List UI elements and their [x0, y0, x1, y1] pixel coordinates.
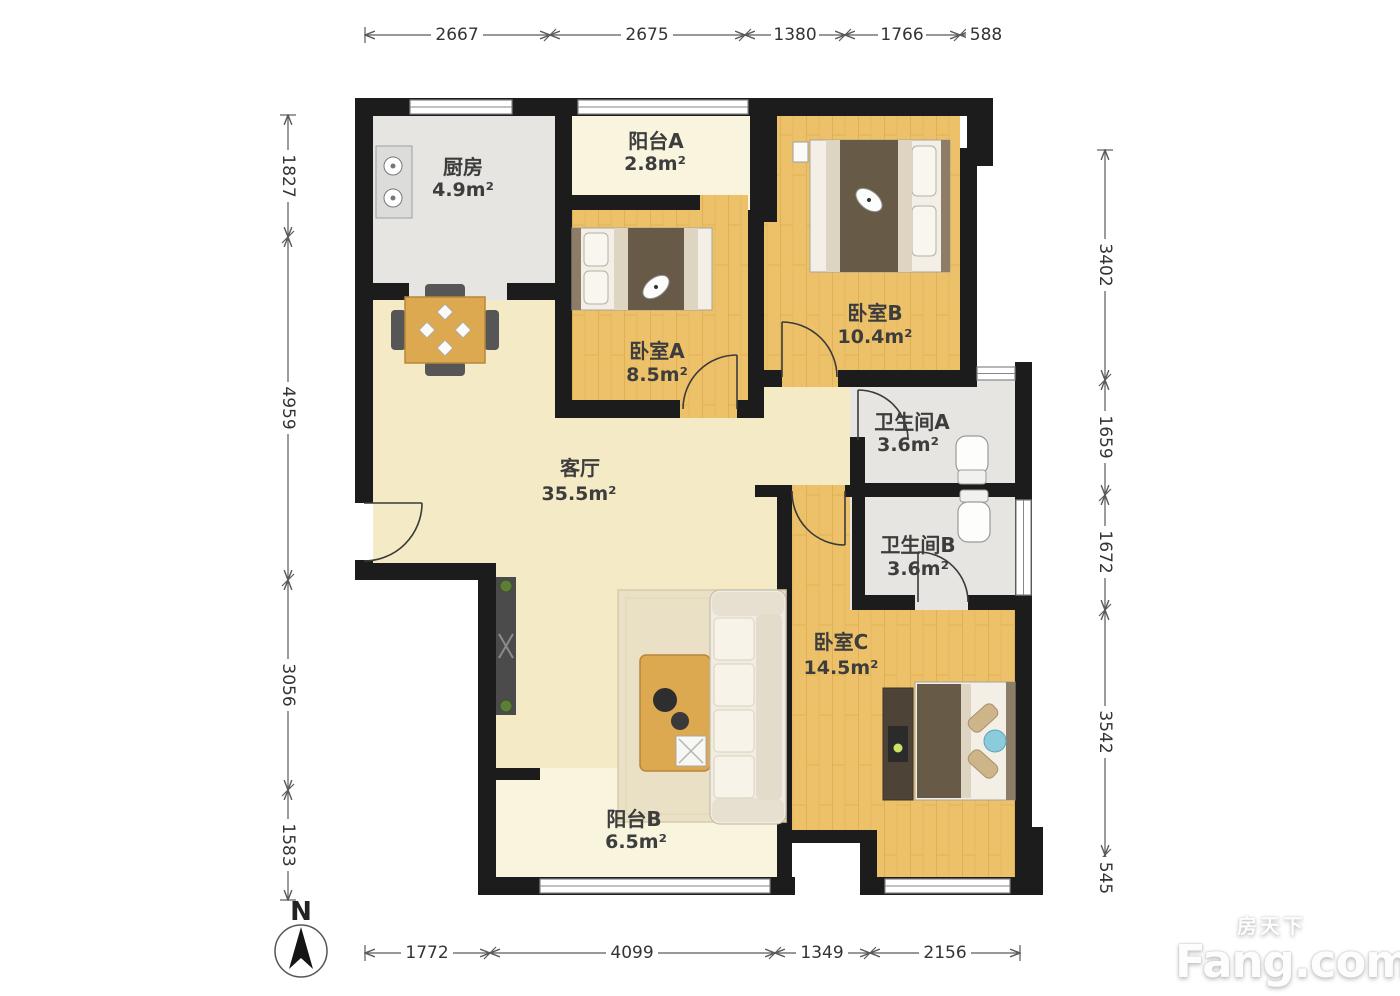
- sofa: [710, 590, 786, 824]
- toilet-b-icon: [958, 490, 990, 542]
- balcony-b-label: 阳台B: [606, 807, 661, 831]
- dim-left-2: 4959: [278, 386, 298, 429]
- tv-cabinet: [496, 577, 516, 715]
- dim-left-4: 1583: [278, 823, 298, 866]
- dining-set: [391, 284, 499, 376]
- bathroom-a-label: 卫生间A: [874, 410, 950, 434]
- dim-left-1: 1827: [278, 154, 298, 197]
- dim-right-3: 1672: [1095, 530, 1115, 573]
- bed-c: [883, 682, 1015, 800]
- bedroom-c-label: 卧室C: [814, 630, 869, 654]
- dimension-right: 3402 1659 1672 3542 545: [1095, 150, 1115, 899]
- dim-bottom-1: 1772: [405, 943, 448, 963]
- bathroom-b-area: 3.6m²: [887, 558, 949, 580]
- bedroom-a-area: 8.5m²: [626, 364, 688, 386]
- balcony-a-label: 阳台A: [628, 129, 684, 153]
- floor-plan-svg: 厨房 4.9m² 阳台A 2.8m² 卧室A 8.5m² 卧室B 10.4m² …: [0, 0, 1400, 996]
- stove-icon: [376, 146, 412, 218]
- living-room-area: 35.5m²: [542, 483, 617, 505]
- dim-right-1: 3402: [1095, 243, 1115, 286]
- balcony-b-area: 6.5m²: [605, 831, 667, 853]
- bathroom-a-area: 3.6m²: [877, 434, 939, 456]
- dim-top-1: 2667: [435, 25, 478, 45]
- kitchen-label: 厨房: [443, 155, 483, 179]
- dim-bottom-2: 4099: [610, 943, 653, 963]
- bedroom-b-label: 卧室B: [847, 301, 902, 325]
- compass-needle-icon: [289, 927, 313, 969]
- dim-top-4: 1766: [880, 25, 923, 45]
- bathroom-b-window: [1016, 500, 1031, 595]
- living-room-label: 客厅: [559, 456, 600, 480]
- dim-top-5: 588: [970, 25, 1002, 45]
- dim-left-3: 3056: [278, 663, 298, 706]
- dimension-left: 1827 4959 3056 1583: [278, 115, 298, 900]
- coffee-table: [640, 655, 710, 771]
- dim-right-5: 545: [1095, 862, 1115, 894]
- dim-right-4: 3542: [1095, 710, 1115, 753]
- bedroom-b-area: 10.4m²: [838, 326, 913, 348]
- outside-patch-notch: [792, 843, 860, 895]
- compass: N: [275, 897, 327, 977]
- bathroom-a-window: [977, 367, 1015, 380]
- kitchen-area: 4.9m²: [432, 179, 494, 201]
- bedroom-c-area: 14.5m²: [804, 657, 879, 679]
- bed-a: [572, 228, 712, 310]
- kitchen-window: [410, 100, 512, 114]
- toilet-a-icon: [956, 436, 988, 484]
- dim-bottom-3: 1349: [800, 943, 843, 963]
- dim-top-3: 1380: [773, 25, 816, 45]
- dimension-bottom: 1772 4099 1349 2156: [365, 943, 1020, 963]
- dim-right-2: 1659: [1095, 415, 1115, 458]
- bed-b: [793, 140, 950, 272]
- dim-bottom-4: 2156: [923, 943, 966, 963]
- balcony-a-area: 2.8m²: [624, 153, 686, 175]
- bedroom-c-window: [885, 879, 1010, 893]
- dimension-top: 2667 2675 1380 1766 588: [365, 25, 1006, 45]
- compass-north-label: N: [290, 897, 312, 927]
- outside-patch-left: [355, 580, 478, 900]
- balcony-a-window: [578, 100, 748, 114]
- balcony-b-window: [540, 879, 770, 893]
- floor-plan-page: 厨房 4.9m² 阳台A 2.8m² 卧室A 8.5m² 卧室B 10.4m² …: [0, 0, 1400, 996]
- bathroom-b-label: 卫生间B: [880, 533, 955, 557]
- dim-top-2: 2675: [625, 25, 668, 45]
- bedroom-a-label: 卧室A: [629, 339, 685, 363]
